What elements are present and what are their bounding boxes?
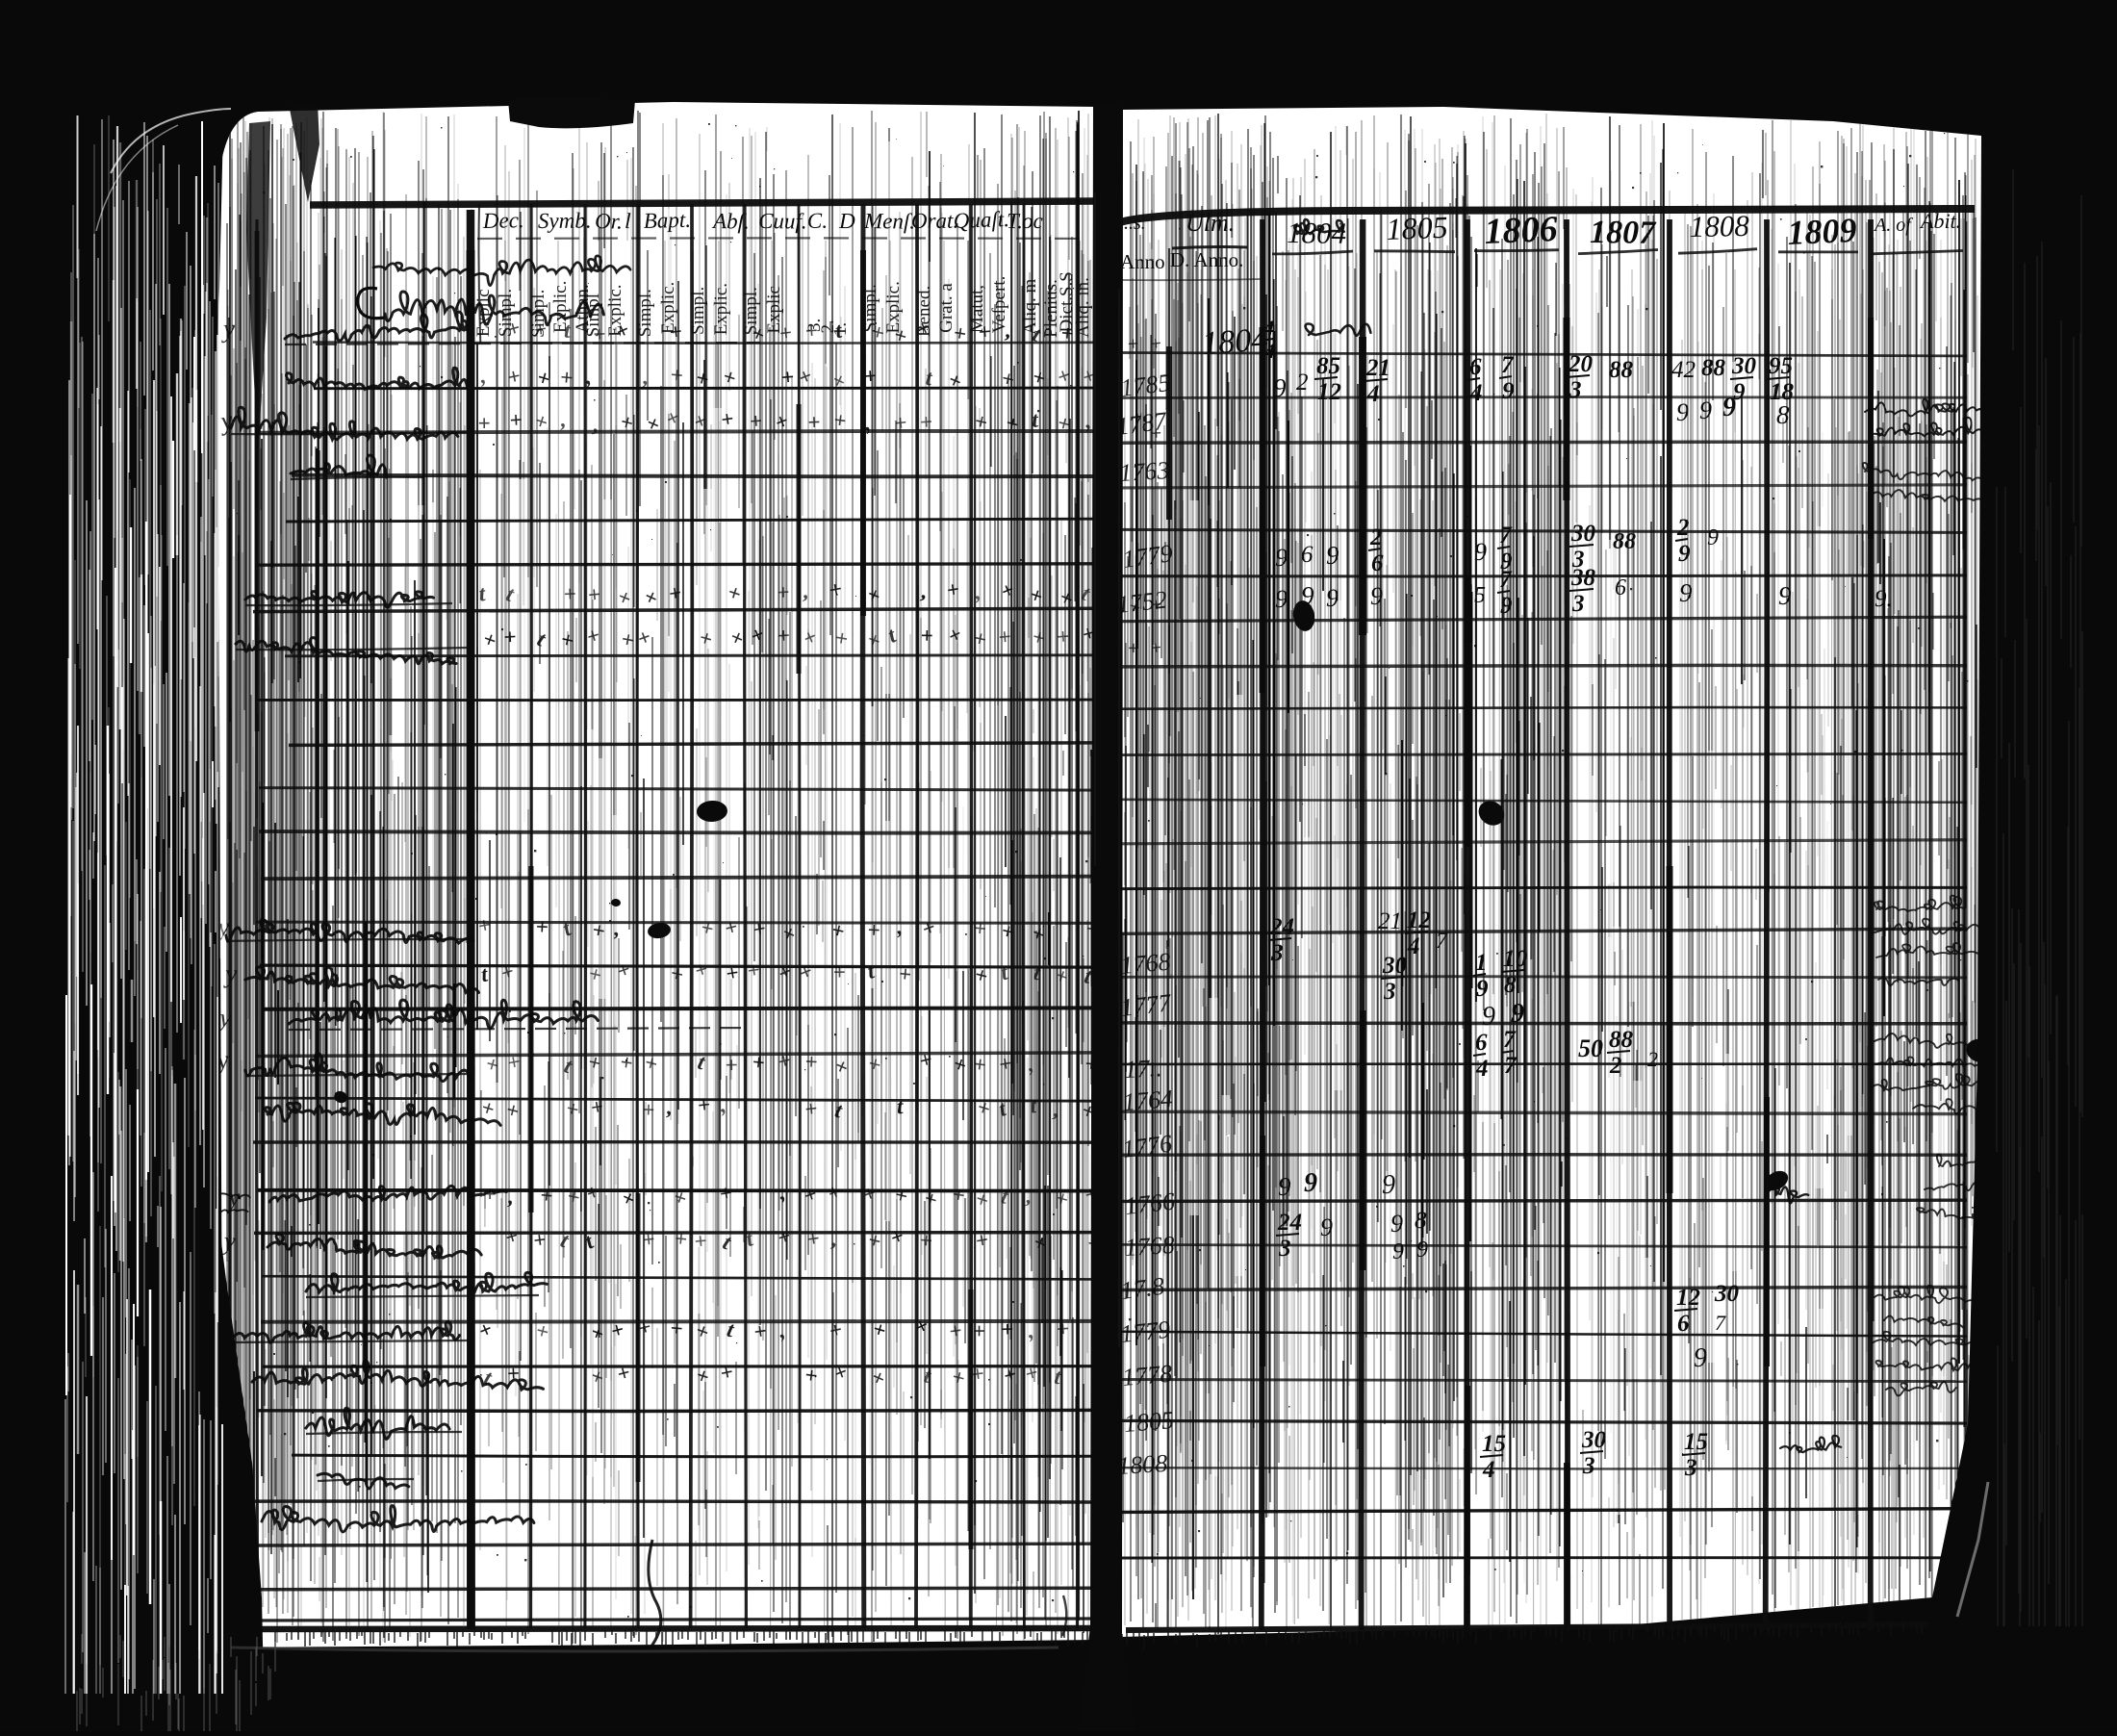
svg-text:42: 42 — [1671, 357, 1696, 383]
svg-text:4: 4 — [1482, 1457, 1495, 1483]
svg-text:4: 4 — [1366, 381, 1380, 407]
svg-text:2: 2 — [1296, 370, 1309, 396]
svg-text:,: , — [560, 407, 568, 431]
svg-text:1778: 1778 — [1121, 1360, 1173, 1391]
svg-text:Simpl.: Simpl. — [635, 289, 655, 337]
svg-text:+: + — [804, 1050, 818, 1075]
svg-text:Simpl.: Simpl. — [688, 287, 708, 335]
svg-text:+: + — [559, 365, 574, 390]
svg-text:1763: 1763 — [1119, 456, 1171, 487]
svg-text:1777: 1777 — [1119, 988, 1173, 1022]
svg-text:24: 24 — [1277, 1210, 1302, 1236]
svg-text:8: 8 — [1776, 400, 1790, 429]
svg-text:1: 1 — [1475, 950, 1488, 976]
svg-text:9: 9 — [1482, 1002, 1495, 1032]
svg-text:+: + — [535, 914, 548, 939]
svg-text:12: 12 — [1317, 379, 1341, 405]
svg-text:+: + — [1001, 1317, 1014, 1341]
svg-text:9: 9 — [1275, 585, 1288, 613]
svg-text:+: + — [777, 580, 790, 605]
svg-text:4: 4 — [1407, 933, 1420, 959]
svg-text:+: + — [674, 1226, 688, 1251]
svg-text:+: + — [587, 582, 601, 607]
svg-text:Bapt.: Bapt. — [643, 208, 691, 233]
svg-text:30: 30 — [1581, 1427, 1607, 1453]
svg-text:1809: 1809 — [1787, 211, 1858, 252]
svg-text:7: 7 — [1504, 1053, 1518, 1079]
svg-text:7: 7 — [1501, 352, 1515, 378]
svg-text:+: + — [1149, 637, 1161, 659]
svg-text:Ulm.: Ulm. — [1186, 209, 1235, 237]
svg-text:Or.: Or. — [595, 209, 623, 234]
svg-text:+: + — [751, 1050, 766, 1075]
svg-text:4: 4 — [1475, 1056, 1489, 1082]
svg-text:1764: 1764 — [1122, 1085, 1174, 1116]
svg-text:2: 2 — [1676, 515, 1690, 541]
svg-text:+: + — [725, 1053, 738, 1077]
svg-text:1804: 1804 — [1201, 321, 1268, 362]
svg-text:Abit.: Abit. — [1919, 209, 1961, 233]
svg-text:9: 9 — [1500, 593, 1513, 619]
svg-text:9: 9 — [1474, 538, 1487, 566]
svg-text:88: 88 — [1609, 1027, 1634, 1053]
svg-text:9: 9 — [1694, 1343, 1707, 1373]
svg-text:+: + — [669, 363, 683, 388]
svg-text:95: 95 — [1769, 353, 1793, 379]
svg-text:1779: 1779 — [1119, 1315, 1172, 1348]
svg-text:4: 4 — [1263, 316, 1274, 340]
svg-text:9: 9 — [1275, 544, 1288, 572]
svg-text:9: 9 — [1390, 1210, 1403, 1238]
svg-text:9: 9 — [1382, 1170, 1395, 1200]
svg-text:+: + — [777, 624, 791, 649]
svg-text:9: 9 — [1679, 578, 1693, 607]
svg-text:9: 9 — [1278, 1172, 1291, 1201]
svg-text:+: + — [593, 321, 606, 345]
svg-text:9: 9 — [1676, 398, 1689, 426]
svg-text:Dec.: Dec. — [482, 208, 524, 233]
svg-text:88: 88 — [1609, 357, 1634, 383]
svg-text:15: 15 — [1482, 1431, 1506, 1457]
svg-text:85: 85 — [1316, 353, 1340, 379]
svg-text:+: + — [483, 1182, 497, 1206]
svg-text:+: + — [506, 1361, 520, 1386]
svg-text:88: 88 — [1701, 355, 1726, 381]
svg-text:+: + — [749, 409, 763, 434]
svg-text:17.8: 17.8 — [1119, 1272, 1166, 1305]
svg-text:21: 21 — [1378, 908, 1402, 934]
svg-text:T.: T. — [1007, 209, 1023, 233]
svg-text:20: 20 — [1568, 351, 1594, 377]
svg-text:9: 9 — [1304, 1168, 1317, 1198]
svg-text:Quaſt.: Quaſt. — [953, 207, 1009, 233]
svg-text:1808: 1808 — [1116, 1449, 1168, 1480]
svg-text:+: + — [1127, 333, 1138, 355]
svg-text:10: 10 — [1503, 946, 1528, 972]
svg-text:Veſpert.: Veſpert. — [989, 276, 1009, 334]
svg-text:+: + — [973, 1319, 985, 1343]
svg-text:6: 6 — [1301, 542, 1314, 568]
svg-text:t: t — [564, 319, 572, 343]
svg-text:4: 4 — [1469, 380, 1483, 406]
svg-text:D: D — [838, 209, 855, 233]
svg-text:30: 30 — [1570, 521, 1596, 547]
svg-text:,: , — [613, 916, 620, 940]
svg-text:12: 12 — [1407, 907, 1431, 933]
svg-text:6: 6 — [1371, 550, 1384, 576]
svg-text:15: 15 — [1684, 1429, 1708, 1455]
svg-text:88: 88 — [1613, 529, 1636, 554]
svg-text:3: 3 — [1569, 377, 1582, 403]
svg-text:+: + — [503, 625, 517, 650]
svg-text:1805: 1805 — [1386, 210, 1448, 246]
svg-text:30: 30 — [1731, 353, 1757, 379]
svg-text:+: + — [669, 1315, 683, 1340]
svg-text:1785: 1785 — [1119, 369, 1172, 402]
svg-text:+: + — [477, 411, 490, 435]
svg-text:9: 9 — [1273, 373, 1287, 402]
svg-text:1766: 1766 — [1123, 1187, 1176, 1220]
svg-text:+: + — [919, 1228, 933, 1253]
svg-text:9: 9 — [1416, 1238, 1428, 1263]
svg-text:9: 9 — [1476, 976, 1489, 1002]
svg-text:+: + — [893, 410, 908, 435]
svg-text:+: + — [1059, 320, 1074, 345]
svg-text:7: 7 — [1499, 567, 1513, 593]
svg-text:+: + — [867, 918, 880, 942]
svg-text:7: 7 — [1503, 1027, 1517, 1053]
svg-text:6: 6 — [1615, 575, 1626, 600]
svg-text:+: + — [509, 408, 523, 433]
svg-text:50: 50 — [1578, 1034, 1603, 1062]
svg-text:Menſ.: Menſ. — [863, 209, 915, 234]
svg-text:Abſ.: Abſ. — [711, 209, 750, 234]
svg-text:+: + — [642, 1097, 655, 1121]
svg-text:Cuuf.: Cuuf. — [758, 209, 807, 233]
svg-text:+: + — [997, 625, 1011, 650]
svg-text:1752: 1752 — [1115, 586, 1168, 619]
svg-text:+: + — [807, 410, 821, 434]
svg-text:+: + — [898, 961, 912, 986]
svg-text:4: 4 — [1263, 339, 1275, 363]
svg-text:17..: 17.. — [1124, 1054, 1162, 1084]
svg-text:7: 7 — [1499, 523, 1513, 549]
svg-text:Symb.: Symb. — [538, 209, 592, 233]
svg-text:9.: 9. — [1875, 586, 1893, 612]
svg-text:9: 9 — [1392, 1239, 1404, 1264]
svg-text:+: + — [693, 1229, 707, 1254]
svg-text:A. of: A. of — [1873, 215, 1913, 236]
svg-text:1768: 1768 — [1124, 1231, 1176, 1262]
svg-text:30: 30 — [1714, 1281, 1740, 1307]
svg-text:5: 5 — [1474, 583, 1486, 608]
svg-text:3: 3 — [1278, 1236, 1291, 1262]
svg-text:+: + — [919, 410, 933, 435]
svg-text:+: + — [973, 916, 988, 941]
svg-text:+: + — [833, 960, 846, 984]
svg-text:2: 2 — [1369, 524, 1383, 550]
svg-text:+: + — [804, 319, 819, 344]
svg-text:3: 3 — [1270, 940, 1284, 966]
svg-text:3: 3 — [1684, 1455, 1697, 1481]
svg-text:+: + — [1128, 638, 1138, 659]
svg-text:Anno: Anno — [1120, 250, 1165, 273]
svg-text:Orat.: Orat. — [911, 209, 958, 233]
svg-text:Aliq. in.: Aliq. in. — [1073, 277, 1093, 338]
svg-text:Explic.: Explic. — [711, 283, 731, 335]
svg-text:oc: oc — [1022, 209, 1043, 233]
svg-text:1805: 1805 — [1123, 1406, 1175, 1438]
svg-text:+: + — [920, 624, 933, 648]
svg-text:9: 9 — [1778, 581, 1792, 610]
svg-text:6: 6 — [1475, 1030, 1488, 1056]
svg-text:Grat. a: Grat. a — [936, 283, 956, 333]
svg-text:+: + — [539, 1183, 553, 1208]
svg-text:1808: 1808 — [1690, 209, 1750, 243]
svg-text:1806: 1806 — [1484, 209, 1559, 252]
svg-text:38: 38 — [1570, 565, 1596, 591]
svg-text:30: 30 — [1382, 953, 1408, 979]
svg-text:1768: 1768 — [1119, 948, 1171, 980]
svg-text:C.: C. — [807, 209, 829, 233]
svg-text:12: 12 — [1676, 1285, 1700, 1311]
svg-text:+: + — [1056, 625, 1070, 650]
svg-text:9: 9 — [1699, 396, 1712, 424]
svg-text:9: 9 — [1326, 541, 1339, 570]
svg-text:3: 3 — [1383, 979, 1396, 1005]
svg-text:9: 9 — [1678, 541, 1691, 567]
svg-text:6: 6 — [1469, 354, 1482, 380]
svg-text:+: + — [780, 365, 795, 390]
svg-text:8: 8 — [1504, 972, 1517, 998]
svg-text:+: + — [803, 1096, 818, 1121]
svg-text:+: + — [978, 319, 992, 345]
svg-text:6: 6 — [1677, 1311, 1690, 1337]
svg-text:+: + — [1056, 1316, 1070, 1341]
svg-text:1807: 1807 — [1590, 215, 1657, 251]
svg-text:9: 9 — [1370, 582, 1383, 610]
svg-text:9: 9 — [1722, 393, 1736, 422]
svg-text:7: 7 — [1436, 929, 1448, 954]
svg-text:+: + — [863, 364, 878, 389]
svg-text:21: 21 — [1365, 355, 1390, 381]
svg-text:3: 3 — [1571, 591, 1585, 617]
svg-text:+: + — [563, 582, 576, 606]
svg-text:..s.: ..s. — [1124, 213, 1146, 234]
svg-text:7: 7 — [1715, 1311, 1726, 1335]
svg-text:9: 9 — [1502, 378, 1515, 404]
svg-text:+: + — [641, 1227, 656, 1252]
svg-text:2: 2 — [1609, 1053, 1622, 1079]
svg-text:+: + — [1149, 333, 1162, 355]
svg-text:9: 9 — [1326, 584, 1339, 612]
svg-text:2: 2 — [1647, 1047, 1658, 1071]
svg-text:9: 9 — [1320, 1213, 1333, 1241]
svg-text:9: 9 — [1511, 999, 1524, 1029]
svg-text:8: 8 — [1415, 1208, 1427, 1234]
svg-text:24: 24 — [1269, 914, 1294, 940]
svg-text:D. Anno.: D. Anno. — [1170, 248, 1243, 271]
svg-text:9: 9 — [1707, 525, 1719, 550]
svg-text:l: l — [625, 209, 631, 233]
svg-text:3: 3 — [1582, 1453, 1595, 1479]
